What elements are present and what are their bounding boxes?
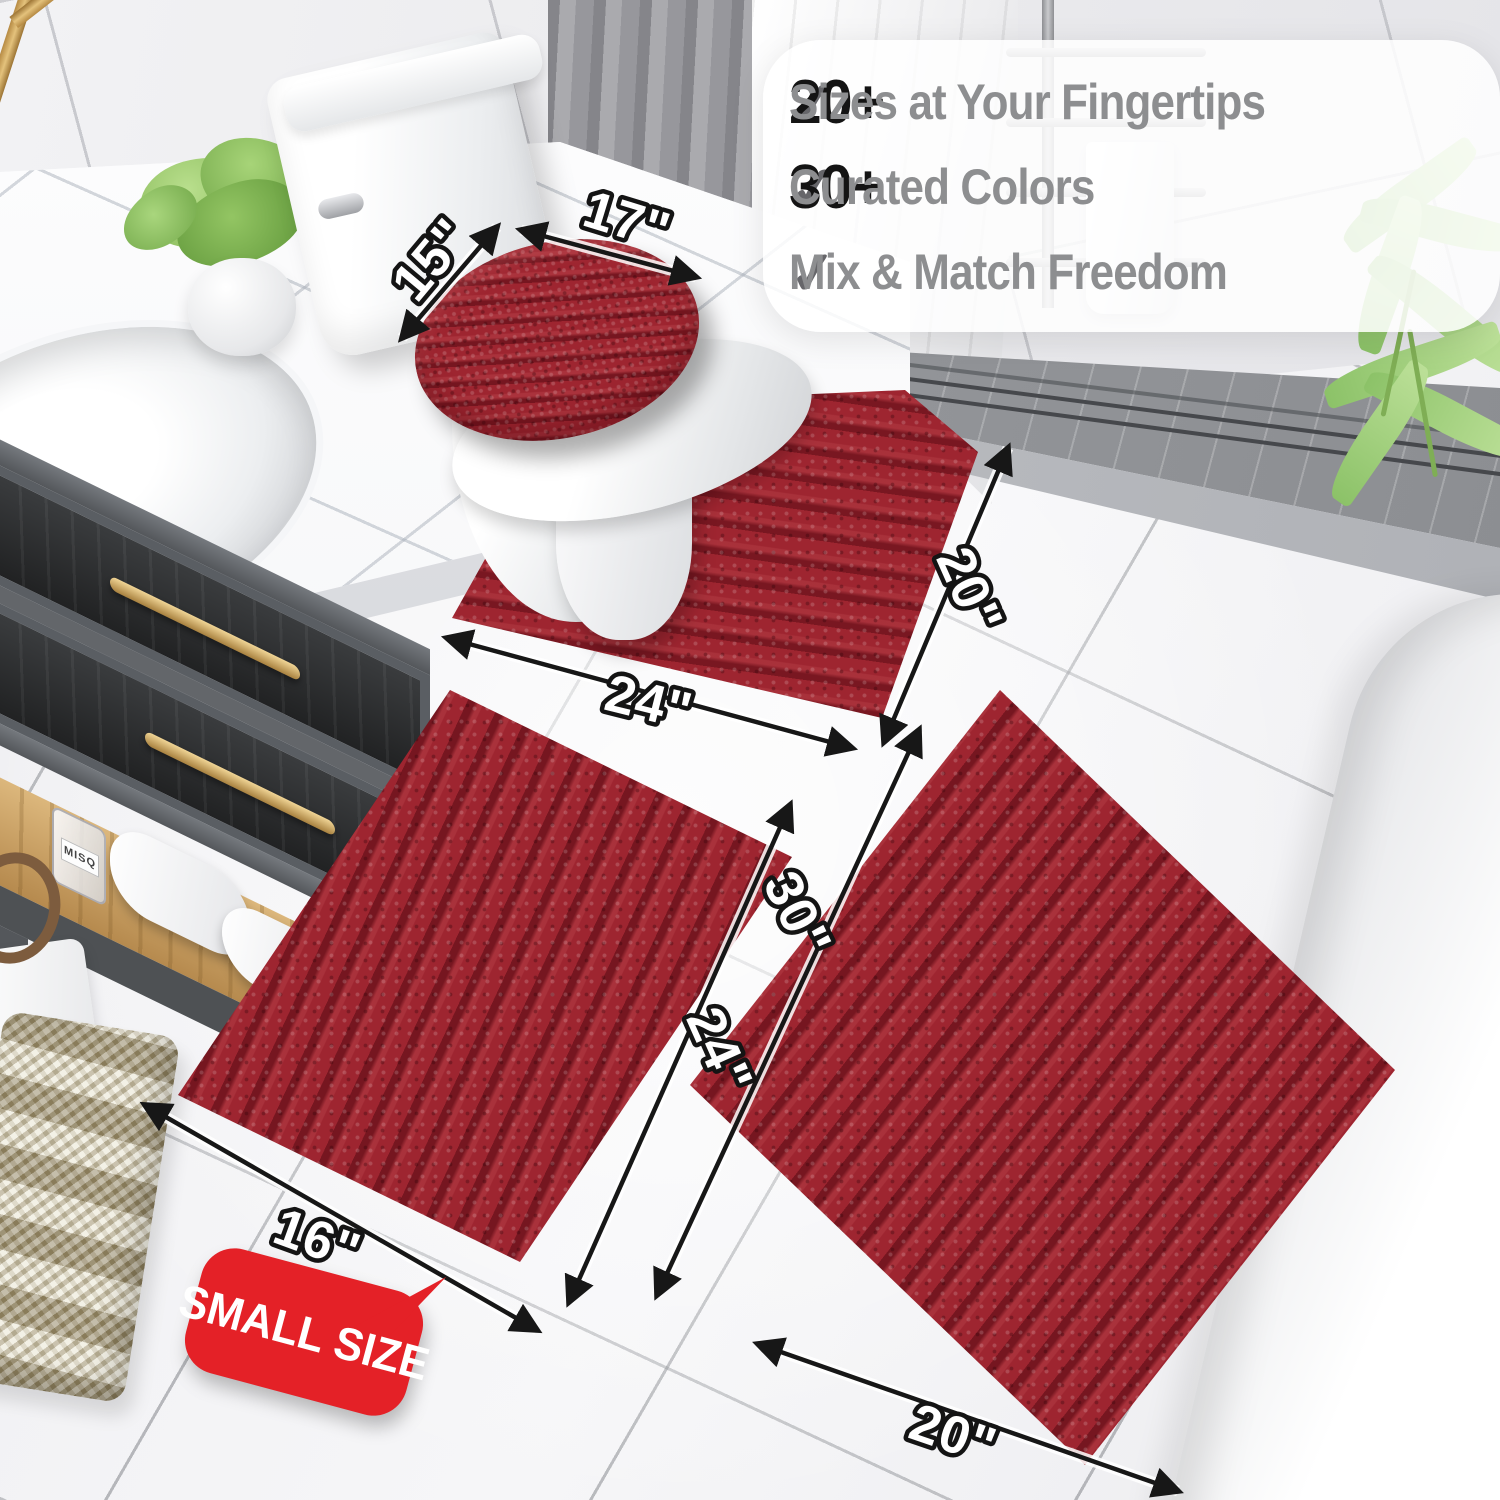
dimension-label-large-width: 20" [902, 1393, 1004, 1477]
dimension-label-large-length: 30" [752, 862, 843, 966]
dimension-label-contour-width: 24" [599, 663, 698, 741]
dimension-label-lid-depth: 15" [381, 207, 482, 312]
dimension-arrow-small-length [569, 805, 790, 1302]
product-image: MISQ ✓ 20+ Sizes at Your Fingertips ✓ 30… [0, 0, 1500, 1500]
badge-label: SMALL SIZE [173, 1273, 434, 1391]
